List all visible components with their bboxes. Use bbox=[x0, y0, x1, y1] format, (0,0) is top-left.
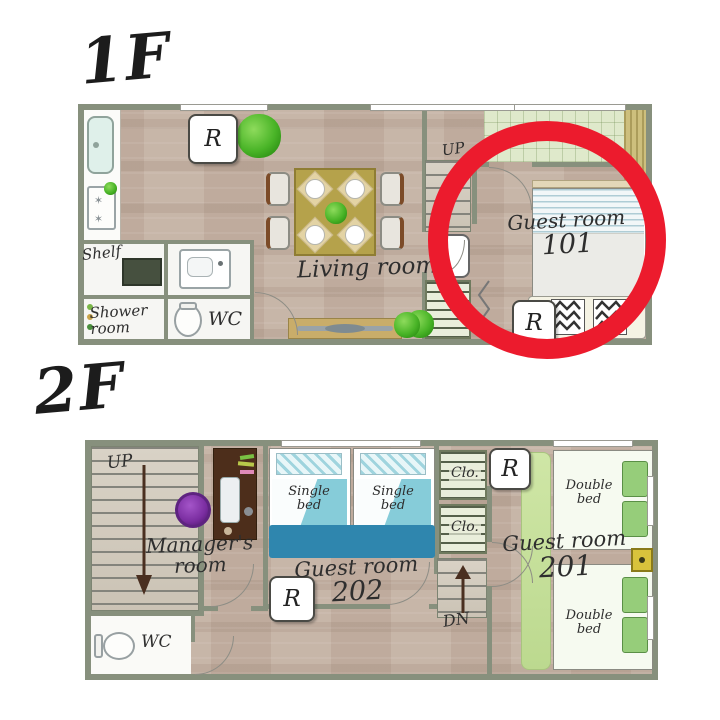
plate-icon bbox=[345, 179, 365, 199]
chair bbox=[266, 172, 290, 206]
washbasin bbox=[179, 249, 231, 289]
wall bbox=[263, 446, 268, 606]
book bbox=[238, 461, 254, 466]
floor-2-title: 2F bbox=[31, 348, 128, 429]
guest-room-201-number: 201 bbox=[538, 549, 593, 585]
book bbox=[240, 454, 254, 460]
window bbox=[370, 104, 518, 111]
door-arc bbox=[255, 292, 298, 335]
single-bed-label: Single bed bbox=[278, 485, 340, 512]
wall bbox=[84, 295, 250, 299]
door-arc bbox=[195, 636, 234, 675]
stairs-direction-arrow-icon bbox=[134, 461, 154, 601]
closet: Clo. bbox=[439, 450, 487, 500]
faucet-icon bbox=[93, 142, 99, 148]
dining-table bbox=[294, 168, 376, 256]
wc-label: WC bbox=[141, 634, 171, 652]
window bbox=[647, 476, 654, 526]
toilet-tank bbox=[94, 634, 103, 658]
tv-icon bbox=[325, 324, 365, 333]
wall bbox=[251, 606, 268, 611]
wc-label: WC bbox=[208, 310, 242, 330]
shelf-unit bbox=[122, 258, 162, 286]
refrigerator-badge: R bbox=[489, 448, 531, 490]
double-bed-label: Double bed bbox=[560, 609, 618, 636]
managers-desk bbox=[213, 448, 257, 540]
pillow bbox=[622, 617, 648, 653]
closet: Clo. bbox=[439, 504, 487, 554]
stairs-direction-arrow-icon bbox=[453, 563, 473, 615]
single-bed-label: Single bed bbox=[362, 485, 424, 512]
desk-lamp-icon bbox=[244, 507, 253, 516]
laptop bbox=[220, 477, 240, 523]
faucet-icon bbox=[218, 261, 223, 266]
wall bbox=[199, 446, 204, 614]
closet-label: Clo. bbox=[449, 466, 481, 481]
closet-label: Clo. bbox=[449, 520, 481, 535]
tv-bench bbox=[288, 318, 402, 339]
plant-icon bbox=[104, 182, 117, 195]
window bbox=[281, 440, 421, 447]
office-chair bbox=[175, 492, 211, 528]
kitchen-counter bbox=[84, 110, 121, 240]
stairs-up-label: UP bbox=[106, 453, 133, 473]
plate-icon bbox=[305, 179, 325, 199]
toilet-tank bbox=[179, 302, 197, 310]
managers-room-label: Manager's room bbox=[134, 532, 265, 579]
plant-icon bbox=[237, 114, 281, 158]
floor-1-title: 1F bbox=[77, 18, 174, 99]
window bbox=[647, 596, 654, 640]
toilet bbox=[103, 632, 135, 660]
floor-2-plan: UP WC Manager's room Singl bbox=[85, 440, 658, 680]
chair bbox=[380, 172, 404, 206]
guest-room-202-label: Guest room 202 bbox=[276, 552, 438, 611]
window bbox=[553, 440, 633, 447]
stairs-down-label: DN bbox=[442, 610, 471, 630]
shelf-label: Shelf bbox=[81, 244, 122, 264]
plate-icon bbox=[305, 225, 325, 245]
window bbox=[180, 104, 268, 111]
refrigerator-letter: R bbox=[204, 126, 221, 152]
floorplan-image: 1F R bbox=[0, 0, 720, 720]
pillow bbox=[622, 461, 648, 497]
table-plant-icon bbox=[325, 202, 347, 224]
double-bed-label: Double bed bbox=[560, 479, 618, 506]
shower-room-label: Shower room bbox=[89, 302, 169, 338]
chair bbox=[266, 216, 290, 250]
wc-room: WC bbox=[91, 616, 191, 674]
plant-icon bbox=[394, 312, 420, 338]
pillow bbox=[276, 453, 342, 475]
kitchen-sink bbox=[87, 116, 114, 174]
plate-icon bbox=[345, 225, 365, 245]
pillow bbox=[622, 577, 648, 613]
basin-bowl bbox=[187, 257, 213, 277]
pillow bbox=[360, 453, 426, 475]
guest-room-202-number: 202 bbox=[331, 575, 384, 609]
chair bbox=[380, 216, 404, 250]
refrigerator-letter: R bbox=[501, 456, 518, 482]
guest-room-201-label: Guest room 201 bbox=[482, 526, 648, 586]
wall bbox=[487, 586, 492, 674]
refrigerator-badge: R bbox=[188, 114, 238, 164]
bathroom-block: Shelf Shower room WC bbox=[84, 240, 254, 339]
window bbox=[514, 104, 626, 111]
book bbox=[240, 470, 254, 474]
red-highlight-circle bbox=[428, 121, 666, 359]
